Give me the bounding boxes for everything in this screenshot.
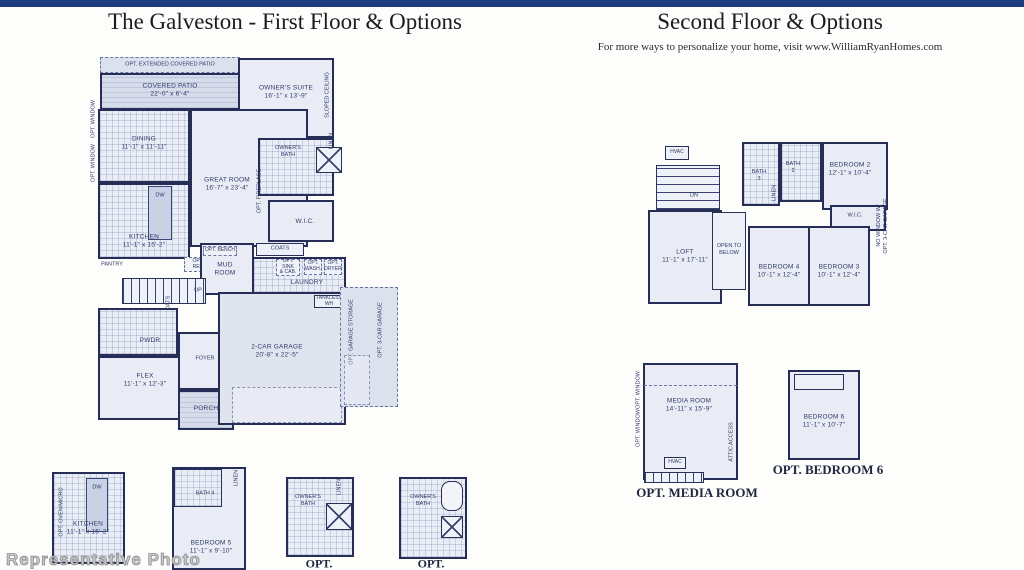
bath4-label: BATH 4 xyxy=(196,490,215,497)
opt-extended-patio-label: OPT. EXTENDED COVERED PATIO xyxy=(125,61,215,68)
opt-bath-b-label: OWNER'SBATH xyxy=(410,494,436,508)
linen-label-6: LINEN xyxy=(336,479,343,495)
porch-label: PORCH xyxy=(194,405,218,413)
opt-bath-b-tub xyxy=(441,481,463,511)
bath4 xyxy=(174,469,222,507)
dw-label: DW xyxy=(155,192,164,199)
hvac-box: HVAC xyxy=(665,146,689,160)
shower xyxy=(316,147,342,173)
bedroom6-label: BEDROOM 611'-1" x 10'-7" xyxy=(803,414,846,431)
opt-bedroom6-caption: OPT. BEDROOM 6 xyxy=(773,462,884,478)
laundry-label: LAUNDRY xyxy=(291,279,323,287)
attic-access-label: ATTIC ACCESS xyxy=(728,422,735,461)
opt-window-label-3: OPT. WINDOW xyxy=(635,371,642,409)
owners-suite-label: OWNER'S SUITE16'-1" x 13'-9" xyxy=(259,85,313,102)
flyer-canvas: The Galveston - First Floor & Options Se… xyxy=(0,0,1024,570)
garage-apron xyxy=(232,387,342,423)
linen-label-5: LINEN xyxy=(233,470,240,486)
representative-photo-watermark: Representative Photo xyxy=(6,550,201,570)
opt-window-label-2: OPT. WINDOW xyxy=(90,144,97,182)
first-floor-title: The Galveston - First Floor & Options xyxy=(30,9,540,35)
linen-label-4: LINEN xyxy=(771,185,778,201)
powder-label: PWDR xyxy=(140,337,161,345)
media-room xyxy=(643,363,738,480)
bedroom3-label: BEDROOM 310'-1" x 12'-4" xyxy=(818,264,861,281)
bath2-label: BATH2 xyxy=(786,161,800,175)
stairs-down xyxy=(656,165,720,210)
opt-bath-b-shower xyxy=(441,516,463,538)
covered-patio-label: COVERED PATIO22'-0" x 6'-4" xyxy=(142,83,197,100)
sloped-ceiling-label: SLOPED CEILING xyxy=(324,72,331,118)
flex-label: FLEX11'-1" x 12'-3" xyxy=(124,373,167,390)
bedroom6-closet xyxy=(794,374,844,390)
powder-room xyxy=(98,308,178,356)
opt-bath-a-caption: OPT. xyxy=(306,557,333,570)
opt-bath-b-plan: OWNER'SBATHOPT. xyxy=(395,472,471,570)
top-accent-bar xyxy=(0,0,1024,7)
mud-room-label: MUDROOM xyxy=(214,262,235,279)
media-dashline xyxy=(644,385,737,386)
opt-media-room-plan: MEDIA ROOM14'-11" x 15'-9"OPT. WINDOWOPT… xyxy=(628,360,748,500)
up-label: UP xyxy=(194,287,202,294)
opt-garage-door xyxy=(344,355,370,405)
wic2-label: W.I.C. xyxy=(848,212,863,219)
opt-bench-box: OPT. BENCH xyxy=(203,246,237,256)
opt-window-label-1: OPT. WINDOW xyxy=(90,100,97,138)
opt-window-label-4: OPT. WINDOW xyxy=(635,409,642,447)
dw-label-2: DW xyxy=(92,484,101,491)
kitchen-label: KITCHEN11'-1" x 15'-2" xyxy=(123,234,166,251)
bedroom2-label: BEDROOM 212'-1" x 10'-4" xyxy=(829,162,872,179)
owners-bath-label: OWNER'SBATH xyxy=(275,145,301,159)
opt-media-room-caption: OPT. MEDIA ROOM xyxy=(636,485,757,501)
opt-dryer-box: OPT.DRYER xyxy=(324,259,342,275)
opt-bath-b-caption: OPT. xyxy=(418,557,445,570)
wic-label: W.I.C. xyxy=(296,218,315,226)
first-floor-plan: OPT. EXTENDED COVERED PATIOCOVERED PATIO… xyxy=(60,55,445,435)
bedroom4-label: BEDROOM 410'-1" x 12'-4" xyxy=(758,264,801,281)
coats-label: COATS xyxy=(271,245,290,252)
garage-note-label: NO WINDOW W/OPT. 3-CAR GARAGE xyxy=(876,198,890,253)
opt-fireplace-label: OPT. FIREPLACE xyxy=(256,169,263,213)
bath3-label: BATH3 xyxy=(752,169,766,183)
opt-3car-garage-label: OPT. 3-CAR GARAGE xyxy=(377,302,384,357)
dining-label: DINING11'-1" x 11'-11" xyxy=(121,136,166,153)
opt-washer-box: OPT.WASH. xyxy=(304,259,322,275)
opt-bath-a-label: OWNER'SBATH xyxy=(295,494,321,508)
loft-label: LOFT11'-1" x 17'-11" xyxy=(662,249,708,266)
garage-label: 2-CAR GARAGE20'-8" x 22'-5" xyxy=(251,344,303,361)
second-floor-plan: HVACDNLOFT11'-1" x 17'-11"OPEN TOBELOWBA… xyxy=(645,138,890,333)
linen-label-1: LINEN xyxy=(328,133,335,149)
great-room-label: GREAT ROOM16'-7" x 23'-4" xyxy=(204,177,250,194)
opt-oven-micro-label: OPT. OVEN/MICRO xyxy=(58,487,65,536)
opt-bath-a-plan: OWNER'SBATHLINENOPT. xyxy=(282,472,358,570)
opt-kitchen-label: KITCHEN11'-1" x 15'-2" xyxy=(67,521,110,538)
opt-bedroom6-plan: BEDROOM 611'-1" x 10'-7"OPT. BEDROOM 6 xyxy=(780,365,890,477)
opt-sink-box: OPT. SINK& CAB. xyxy=(276,259,300,276)
dn-label: DN xyxy=(690,192,698,199)
media-stairs xyxy=(644,472,704,483)
opt-bath-a-shower xyxy=(326,503,352,530)
hvac-box-2: HVAC xyxy=(664,457,686,469)
second-floor-title: Second Floor & Options xyxy=(540,9,1000,35)
pantry-label: PANTRY xyxy=(101,261,123,268)
open-to-below-label: OPEN TOBELOW xyxy=(717,243,742,257)
personalize-subtitle: For more ways to personalize your home, … xyxy=(540,41,1000,53)
media-room-label: MEDIA ROOM14'-11" x 15'-9" xyxy=(666,398,712,415)
foyer-label: FOYER xyxy=(196,355,215,362)
